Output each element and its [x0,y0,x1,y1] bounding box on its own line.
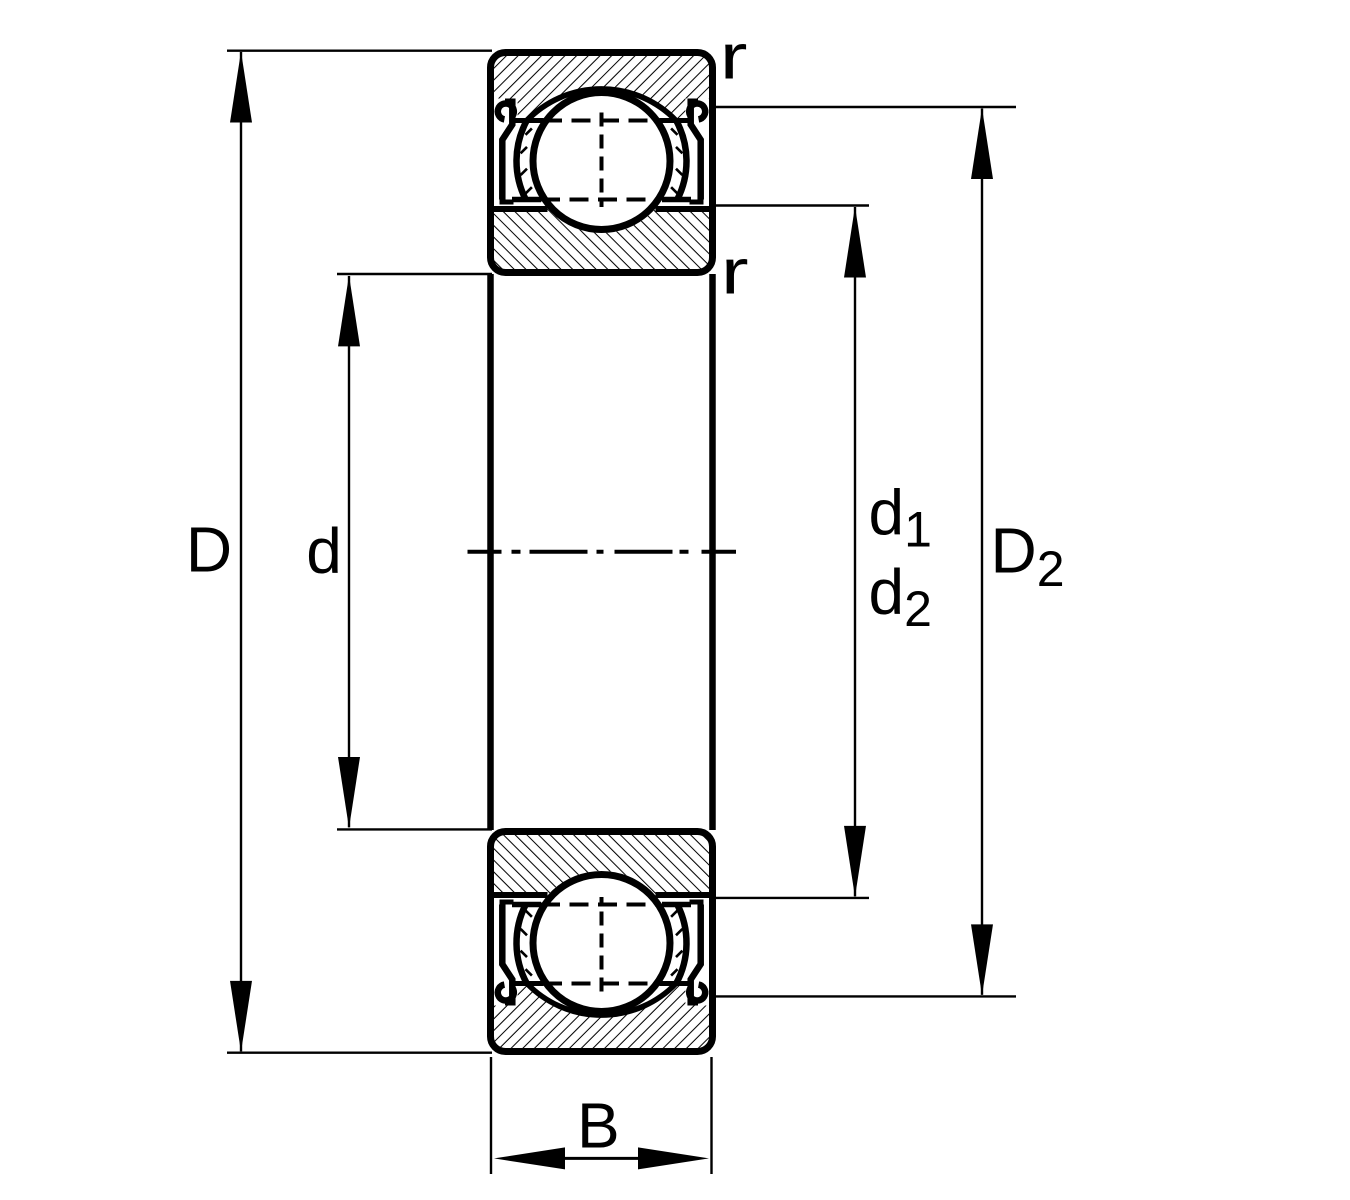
svg-text:B: B [577,1089,620,1161]
svg-text:d: d [306,515,342,587]
svg-text:r: r [721,236,749,308]
svg-text:r: r [720,21,748,93]
svg-text:D: D [186,513,232,585]
